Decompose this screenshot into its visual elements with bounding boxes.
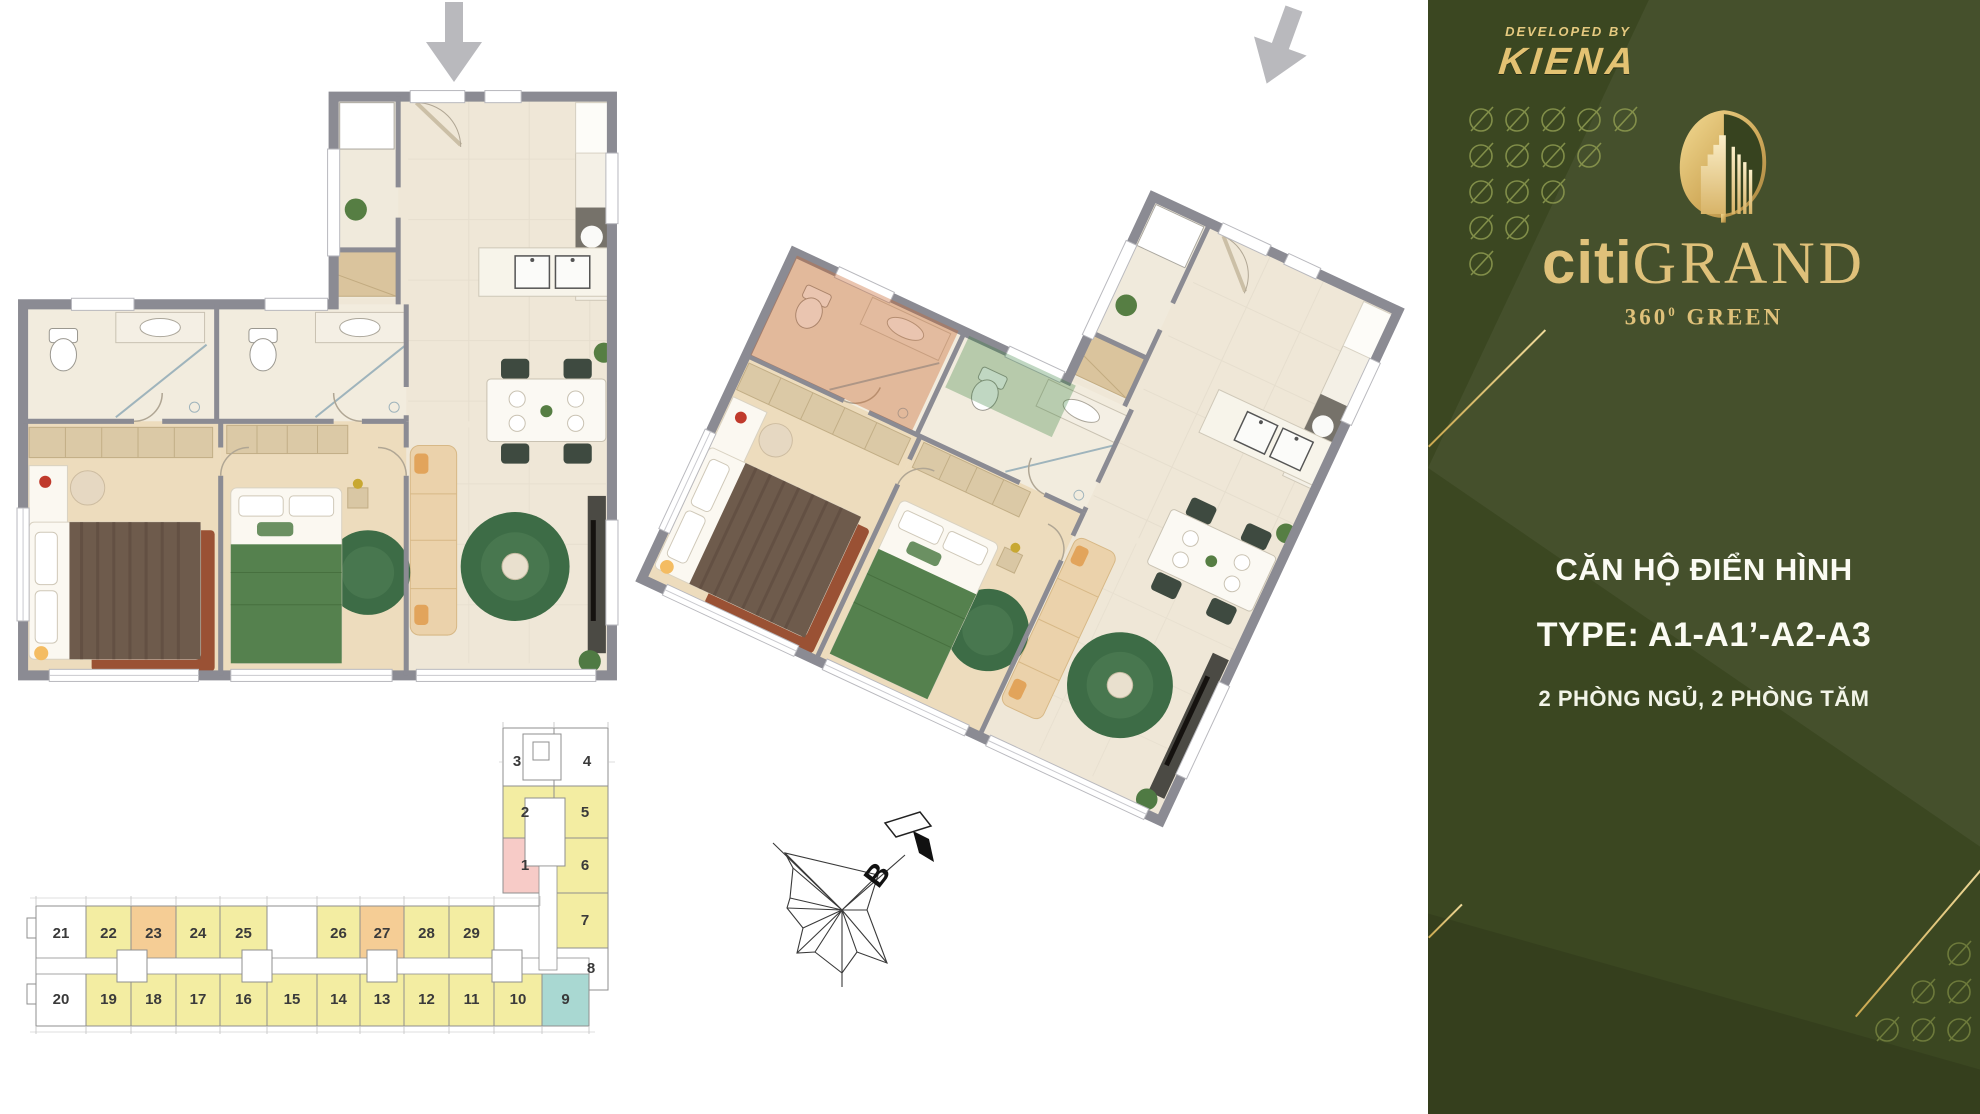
keyplan-unit-label: 14 [330, 991, 347, 1008]
keyplan-unit-label: 16 [235, 991, 252, 1008]
keyplan-unit-label: 3 [513, 753, 521, 770]
keyplan-unit-label: 25 [235, 925, 252, 942]
tagline-green: GREEN [1686, 305, 1783, 330]
brand-citi: citi [1542, 229, 1633, 296]
keyplan-unit-label: 12 [418, 991, 435, 1008]
keyplan-unit-label: 4 [583, 753, 592, 770]
leaf-pattern-bottom [1860, 938, 1976, 1050]
developer-name: KIENA [1446, 41, 1691, 84]
keyplan-unit-label: 23 [145, 925, 162, 942]
floorplan-type-a-rotated-view [631, 59, 1408, 832]
keyplan-unit-label: 10 [510, 991, 527, 1008]
brand-sidebar: DEVELOPED BY KIENA citiGRAND 3600 GREEN … [1428, 0, 1980, 1114]
keyplan-unit-4 [554, 728, 608, 786]
brand-tagline: 3600 GREEN [1448, 304, 1960, 331]
entrance-arrow-icon [1238, 0, 1322, 96]
keyplan-unit-label: 19 [100, 991, 117, 1008]
keyplan-unit-label: 11 [464, 991, 480, 1008]
keyplan-unit-label: 2 [521, 804, 529, 821]
developed-by-label: DEVELOPED BY [1448, 24, 1688, 39]
entrance-arrow-icon [424, 2, 484, 84]
keyplan-unit-label: 17 [190, 991, 207, 1008]
keyplan-floor-overview: 3425167821222324252627282920191817161514… [25, 722, 625, 1034]
brand-grand: GRAND [1633, 230, 1866, 296]
unit-type-line: TYPE: A1-A1’-A2-A3 [1438, 616, 1970, 655]
keyplan-unit-label: 15 [284, 991, 301, 1008]
keyplan-unit-label: 6 [581, 857, 589, 874]
keyplan-unit-label: 29 [463, 925, 480, 942]
keyplan-unit-label: 7 [581, 912, 589, 929]
brochure-page: { "sidebar": { "bg_color": "#3B4721", "g… [0, 0, 1980, 1114]
citigrand-building-icon [1674, 106, 1770, 224]
keyplan-unit-label: 8 [587, 960, 595, 977]
keyplan-unit-label: 22 [100, 925, 117, 942]
keyplan-unit-label: 21 [53, 925, 70, 942]
tagline-degree: 360 [1625, 305, 1669, 330]
page-title: CĂN HỘ ĐIỂN HÌNH [1438, 552, 1970, 588]
keyplan-unit-label: 28 [418, 925, 435, 942]
citigrand-wordmark: citiGRAND [1448, 228, 1960, 298]
keyplan-unit-label: 26 [330, 925, 347, 942]
north-compass-icon: B [735, 795, 945, 1020]
keyplan-unit-label: 18 [145, 991, 162, 1008]
keyplan-unit-label: 24 [190, 925, 207, 942]
keyplan-unit-label: 13 [374, 991, 391, 1008]
keyplan-unit-label: 5 [581, 804, 589, 821]
keyplan-unit-label: 9 [561, 991, 569, 1008]
unit-spec-line: 2 PHÒNG NGỦ, 2 PHÒNG TĂM [1438, 686, 1970, 712]
keyplan-unit-label: 1 [521, 857, 529, 874]
floorplan-type-a-top-view [15, 88, 620, 684]
keyplan-unit-label: 27 [374, 925, 391, 942]
tagline-degree-sup: 0 [1668, 304, 1678, 319]
keyplan-unit-label: 20 [53, 991, 70, 1008]
developer-logo: DEVELOPED BY KIENA [1448, 24, 1688, 84]
